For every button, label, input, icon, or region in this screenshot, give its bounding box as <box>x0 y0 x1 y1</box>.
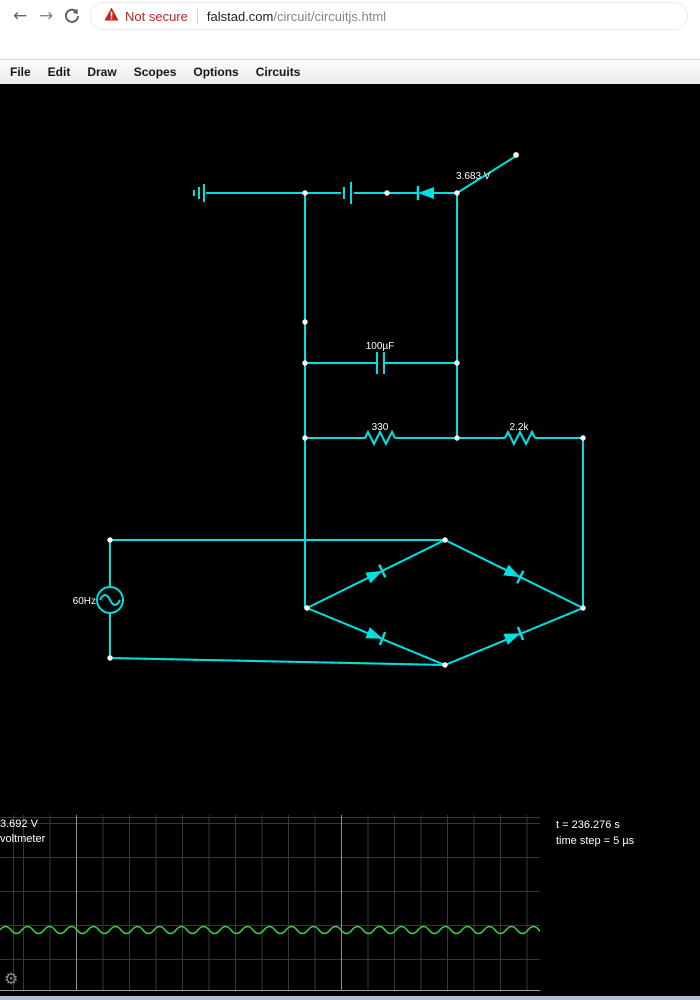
ground-symbol[interactable] <box>194 184 204 202</box>
scope-readout: 3.692 V voltmeter <box>0 817 45 847</box>
resistor-330-label: 330 <box>372 422 389 433</box>
resistor-2.2k-label: 2.2k <box>510 422 530 433</box>
window-bottom-edge <box>0 996 700 1000</box>
bridge-diode-top-right[interactable] <box>503 564 524 584</box>
browser-toolbar: ← → Not secure falstad.com/circuit/circu… <box>0 0 700 59</box>
reload-icon[interactable] <box>63 7 81 31</box>
bridge-diode-top-left[interactable] <box>365 565 386 585</box>
capacitor-100uF[interactable] <box>377 352 384 374</box>
sim-time: t = 236.276 s <box>556 817 634 833</box>
not-secure-warning-icon <box>104 7 119 26</box>
ac-voltage-source[interactable] <box>97 587 123 613</box>
menu-scopes[interactable]: Scopes <box>134 65 177 79</box>
address-bar[interactable]: Not secure falstad.com/circuit/circuitjs… <box>90 2 688 30</box>
bridge-diode-bottom-right[interactable] <box>503 627 523 646</box>
url-path: /circuit/circuitjs.html <box>273 9 386 24</box>
sim-time-step: time step = 5 µs <box>556 833 634 849</box>
url-text[interactable]: falstad.com/circuit/circuitjs.html <box>207 9 386 24</box>
menu-options[interactable]: Options <box>193 65 238 79</box>
url-host: falstad.com <box>207 9 273 24</box>
simulation-info: t = 236.276 s time step = 5 µs <box>556 817 634 849</box>
wire-posts <box>107 152 585 668</box>
back-icon[interactable]: ← <box>13 5 27 27</box>
menu-circuits[interactable]: Circuits <box>256 65 301 79</box>
capacitor-label: 100µF <box>366 341 395 352</box>
menu-edit[interactable]: Edit <box>48 65 71 79</box>
simulator-menubar: File Edit Draw Scopes Options Circuits <box>0 59 700 84</box>
menu-draw[interactable]: Draw <box>87 65 116 79</box>
top-diode[interactable] <box>418 186 434 200</box>
falstad-circuit-simulator-window: ← → Not secure falstad.com/circuit/circu… <box>0 0 700 1000</box>
scope-trace <box>0 815 540 991</box>
scope-channel-label: voltmeter <box>0 832 45 847</box>
not-secure-label[interactable]: Not secure <box>125 9 188 24</box>
oscilloscope[interactable]: ⚙ <box>0 815 540 991</box>
scope-voltage-value: 3.692 V <box>0 817 45 832</box>
menu-file[interactable]: File <box>10 65 31 79</box>
gear-icon[interactable]: ⚙ <box>4 970 18 988</box>
top-capacitor[interactable] <box>344 182 351 204</box>
forward-icon[interactable]: → <box>39 5 53 27</box>
switch-voltage-label: 3.683 V <box>456 171 491 182</box>
circuit-canvas[interactable]: 3.683 V 100µF 330 2.2k 60Hz <box>0 84 700 1000</box>
bridge-diode-bottom-left[interactable] <box>365 626 385 645</box>
url-divider <box>197 8 198 24</box>
ac-source-label: 60Hz <box>73 596 96 607</box>
